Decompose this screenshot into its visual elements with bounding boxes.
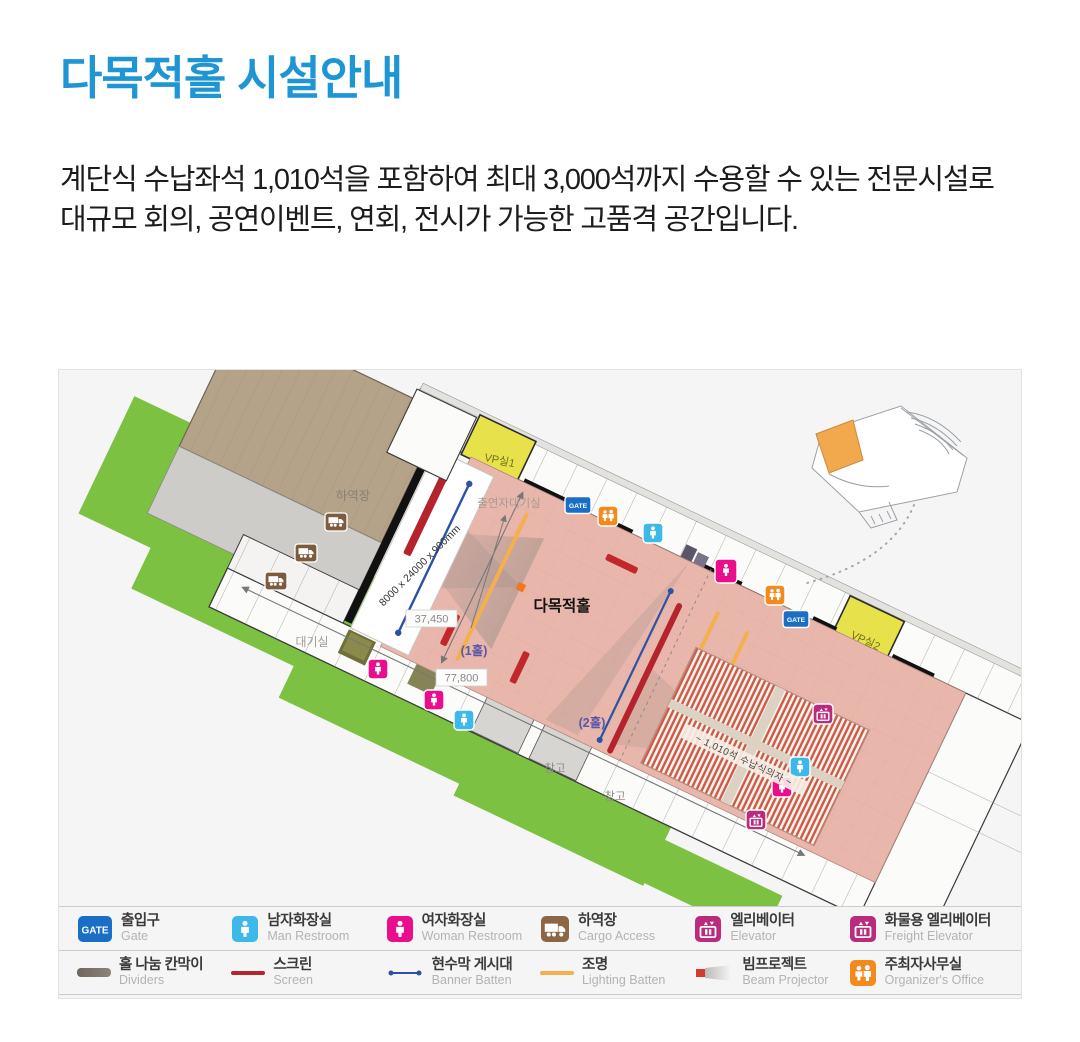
man-restroom-icon [231,915,259,943]
woman-restroom-icon [386,915,414,943]
label-waiting-room: 대기실 [295,635,328,649]
legend: GATE 출입구Gate 남자화장실Man Restroom 여자화장실Woma… [59,906,1021,995]
legend-item-dividers: 홀 나눔 칸막이Dividers [77,958,231,986]
label-storage1: 창고 [544,762,565,775]
gate-icon: GATE [783,611,809,628]
organizer-office-icon [765,585,785,605]
svg-text:GATE: GATE [81,925,108,936]
legend-item-banner: 현수막 게시대Banner Batten [386,958,540,986]
cargo-truck-icon [295,544,317,562]
legend-item-screen: 스크린Screen [231,958,385,986]
svg-text:GATE: GATE [569,503,588,510]
gate-icon: GATE [77,915,113,943]
legend-item-freight-elevator: 화물용 엘리베이터Freight Elevator [849,914,1003,942]
gate-icon: GATE [565,497,591,514]
banner-batten-swatch [386,967,424,979]
svg-text:37,450: 37,450 [415,614,449,626]
elevator-icon [746,810,766,830]
lighting-swatch [540,971,574,975]
cargo-truck-icon [265,572,287,590]
screen-swatch [231,971,265,975]
legend-item-man-restroom: 남자화장실Man Restroom [231,914,385,942]
man-restroom-icon [643,523,663,543]
label-loading-dock: 하역장 [336,489,371,503]
legend-item-gate: GATE 출입구Gate [77,914,231,942]
floorplan-panel: GATE GATE [58,369,1022,999]
page-description: 계단식 수납좌석 1,010석을 포함하여 최대 3,000석까지 수용할 수 … [60,160,1022,240]
freight-elevator-icon [849,915,877,943]
legend-row-2: 홀 나눔 칸막이Dividers 스크린Screen 현수막 게시대Banner… [59,951,1021,995]
elevator-icon [694,915,722,943]
legend-item-organizer: 주최자사무실Organizer's Office [849,958,1003,986]
legend-item-beam-projector: 빔프로젝트Beam Projector [694,958,848,986]
label-storage2: 창고 [604,790,625,803]
man-restroom-icon [454,710,474,730]
woman-restroom-icon [715,559,737,583]
legend-item-woman-restroom: 여자화장실Woman Restroom [386,914,540,942]
svg-text:GATE: GATE [787,617,806,624]
legend-item-lighting: 조명Lighting Batten [540,958,694,986]
organizer-office-icon [849,959,877,987]
page-title: 다목적홀 시설안내 [60,42,1022,108]
legend-row-1: GATE 출입구Gate 남자화장실Man Restroom 여자화장실Woma… [59,907,1021,951]
legend-item-elevator: 엘리베이터Elevator [694,914,848,942]
building-locator-sketch [807,406,967,583]
label-hall2: (2홀) [579,715,606,730]
label-hall-name: 다목적홀 [533,596,590,615]
label-dim-width: 37,450 [406,610,457,627]
svg-text:77,800: 77,800 [445,673,479,685]
label-dim-length: 77,800 [436,669,487,686]
man-restroom-icon [790,757,810,777]
woman-restroom-icon [368,659,388,679]
cargo-truck-icon [540,915,570,943]
floorplan-diagram: GATE GATE [59,370,1021,906]
woman-restroom-icon [424,690,444,710]
freight-elevator-icon [813,704,833,724]
legend-item-cargo: 하역장Cargo Access [540,914,694,942]
beam-projector-swatch [694,964,734,982]
label-hall1: (1홀) [461,643,488,658]
cargo-truck-icon [325,513,347,531]
organizer-office-icon [598,506,618,526]
label-performer-room: 출연자대기실 [477,497,540,510]
divider-swatch [77,968,111,977]
